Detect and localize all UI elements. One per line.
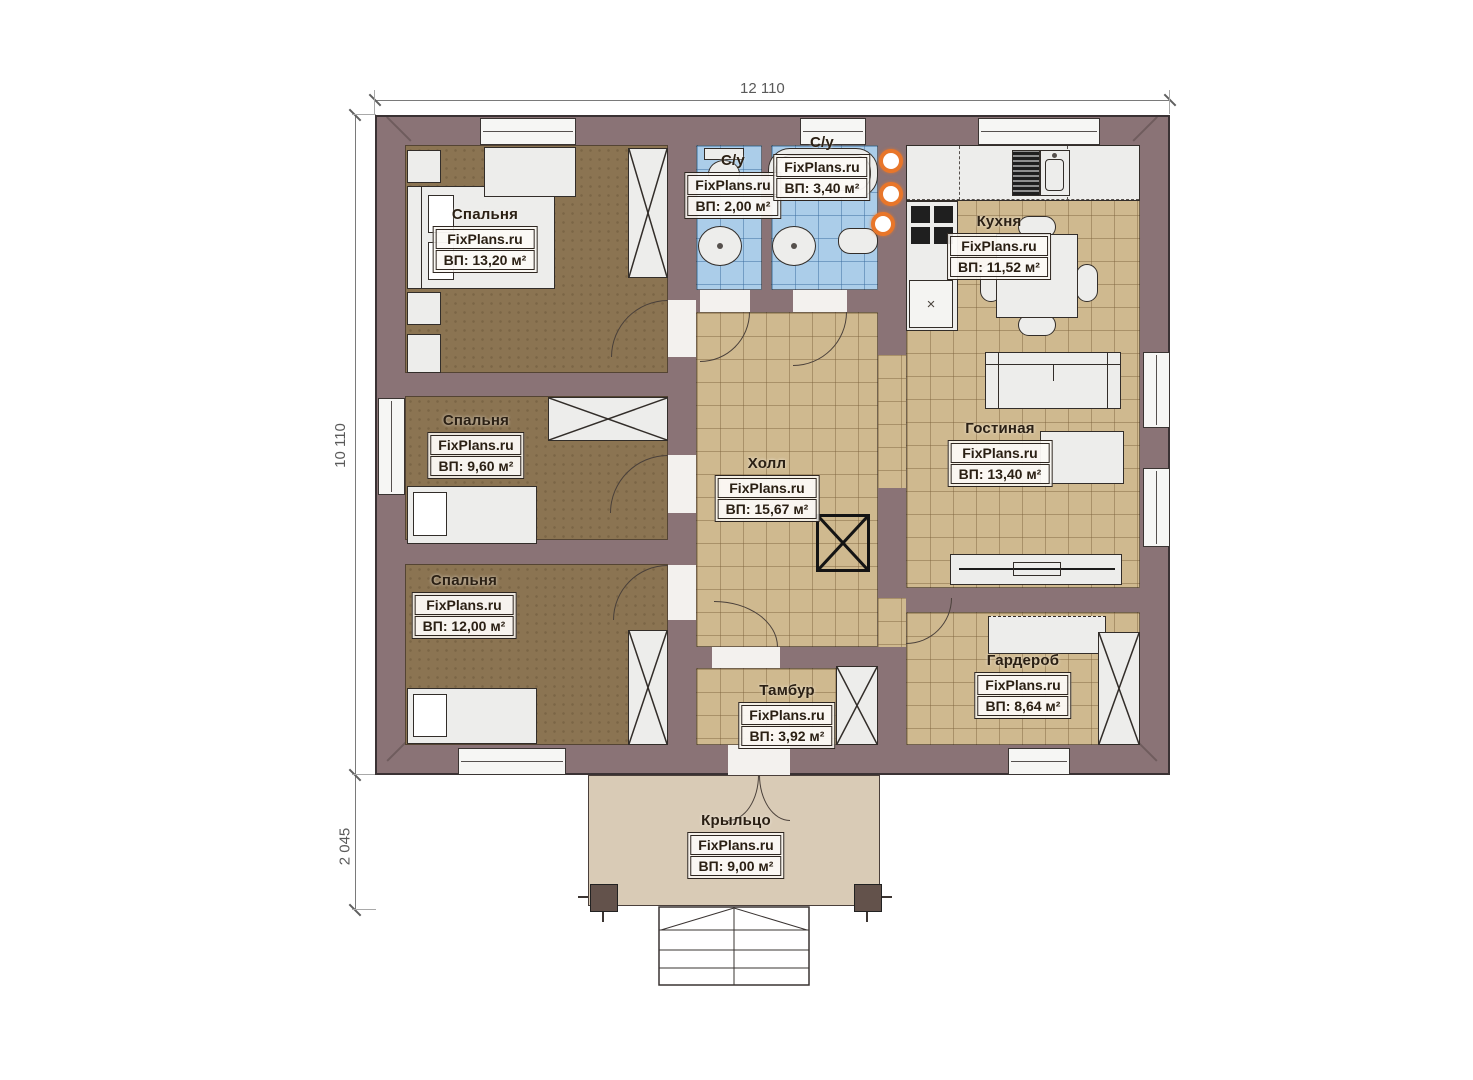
window-bedroom2 — [378, 398, 405, 495]
watermark: FixPlans.ru — [687, 175, 778, 195]
room-name: Спальня — [443, 412, 509, 429]
room-area: ВП: 2,00 м² — [687, 196, 778, 216]
room-info-box: FixPlans.ru ВП: 8,64 м² — [974, 672, 1071, 719]
window-living-1 — [1143, 352, 1170, 428]
washbasin — [838, 228, 878, 254]
room-area: ВП: 8,64 м² — [977, 696, 1068, 716]
room-label-living: Гостиная FixPlans.ru ВП: 13,40 м² — [948, 420, 1053, 487]
bedroom1-door-opening — [668, 300, 696, 357]
room-area: ВП: 9,60 м² — [430, 456, 521, 476]
sofa — [985, 352, 1121, 409]
room-label-bathroom1: С/у FixPlans.ru ВП: 2,00 м² — [684, 152, 781, 219]
sofa-armrest — [986, 353, 999, 408]
room-name: Спальня — [452, 206, 518, 223]
bathroom2-door-opening — [793, 290, 847, 312]
tv-stand — [950, 554, 1122, 585]
wardrobe-symbol — [548, 397, 668, 441]
room-info-box: FixPlans.ru ВП: 3,92 м² — [738, 702, 835, 749]
room-label-hall: Холл FixPlans.ru ВП: 15,67 м² — [715, 455, 820, 522]
room-info-box: FixPlans.ru ВП: 3,40 м² — [773, 154, 870, 201]
extension-line — [374, 90, 375, 114]
room-area: ВП: 3,92 м² — [741, 726, 832, 746]
room-area: ВП: 11,52 м² — [950, 257, 1048, 277]
vestibule-door-opening — [712, 647, 780, 668]
room-info-box: FixPlans.ru ВП: 9,60 м² — [427, 432, 524, 479]
room-area: ВП: 13,20 м² — [436, 250, 535, 270]
burner — [911, 206, 930, 223]
room-name: Гардероб — [987, 652, 1060, 669]
drain — [717, 243, 723, 249]
watermark: FixPlans.ru — [950, 236, 1048, 256]
front-door-opening — [728, 745, 790, 775]
chair — [1076, 264, 1098, 302]
dish-drainer — [1012, 150, 1040, 196]
room-label-wardrobe: Гардероб FixPlans.ru ВП: 8,64 м² — [974, 652, 1071, 719]
watermark: FixPlans.ru — [977, 675, 1068, 695]
dresser — [407, 334, 441, 373]
porch-steps — [658, 906, 810, 986]
watermark: FixPlans.ru — [718, 478, 817, 498]
desk — [1040, 431, 1124, 484]
toilet — [772, 226, 816, 266]
bedroom2-door-opening — [668, 455, 696, 513]
boiler-equipment-icon — [879, 182, 903, 206]
nightstand — [407, 292, 441, 325]
room-name: С/у — [810, 134, 834, 151]
bathroom1-door-opening — [700, 290, 750, 312]
ventilation-shaft-symbol — [816, 514, 870, 572]
extension-line — [352, 774, 376, 775]
room-label-bedroom3: Спальня FixPlans.ru ВП: 12,00 м² — [412, 572, 517, 639]
room-name: Спальня — [431, 572, 497, 589]
wardrobe-symbol — [628, 148, 668, 278]
room-info-box: FixPlans.ru ВП: 12,00 м² — [412, 592, 517, 639]
room-label-bedroom1: Спальня FixPlans.ru ВП: 13,20 м² — [433, 206, 538, 273]
window-bedroom1 — [480, 118, 576, 145]
room-label-kitchen: Кухня FixPlans.ru ВП: 11,52 м² — [947, 213, 1051, 280]
sofa-armrest — [1107, 353, 1120, 408]
sink-basin — [1045, 159, 1064, 191]
extension-line — [352, 114, 376, 115]
nightstand — [407, 150, 441, 183]
extension-line — [1169, 90, 1170, 114]
burner — [911, 227, 930, 244]
room-info-box: FixPlans.ru ВП: 9,00 м² — [687, 832, 784, 879]
room-area: ВП: 13,40 м² — [951, 464, 1050, 484]
wardrobe-symbol — [836, 666, 878, 745]
shelf-unit — [988, 616, 1106, 654]
dimension-line-left-main — [355, 115, 356, 775]
room-label-bathroom2: С/у FixPlans.ru ВП: 3,40 м² — [773, 134, 870, 201]
drain — [791, 243, 797, 249]
room-name: Крыльцо — [701, 812, 771, 829]
room-name: Холл — [748, 455, 786, 472]
room-name: С/у — [721, 152, 745, 169]
room-label-bedroom2: Спальня FixPlans.ru ВП: 9,60 м² — [427, 412, 524, 479]
watermark: FixPlans.ru — [415, 595, 514, 615]
wardrobe-symbol — [628, 630, 668, 745]
faucet — [1052, 153, 1057, 158]
boiler-equipment-icon — [879, 149, 903, 173]
window-bedroom3 — [458, 748, 566, 775]
porch-column — [590, 884, 618, 912]
room-area: ВП: 12,00 м² — [415, 616, 514, 636]
kitchen-sink — [1040, 150, 1070, 196]
watermark: FixPlans.ru — [436, 229, 535, 249]
room-info-box: FixPlans.ru ВП: 11,52 м² — [947, 233, 1051, 280]
dimension-height-main: 10 110 — [332, 423, 349, 468]
watermark: FixPlans.ru — [776, 157, 867, 177]
single-bed — [407, 486, 537, 544]
room-info-box: FixPlans.ru ВП: 15,67 м² — [715, 475, 820, 522]
washbasin — [698, 226, 742, 266]
appliance-x-symbol: × — [909, 280, 953, 328]
room-info-box: FixPlans.ru ВП: 2,00 м² — [684, 172, 781, 219]
dresser-under-window — [484, 147, 576, 197]
room-area: ВП: 3,40 м² — [776, 178, 867, 198]
watermark: FixPlans.ru — [741, 705, 832, 725]
room-area: ВП: 9,00 м² — [690, 856, 781, 876]
upper-cabinet-line — [907, 199, 1139, 200]
floor-plan: 12 110 10 110 2 045 — [0, 0, 1473, 1080]
dimension-width-total: 12 110 — [740, 80, 785, 97]
room-label-porch: Крыльцо FixPlans.ru ВП: 9,00 м² — [687, 812, 784, 879]
bedroom3-door-opening — [668, 565, 696, 620]
pillow — [413, 694, 447, 737]
sofa-cushion-divider — [1053, 365, 1054, 381]
window-kitchen — [978, 118, 1100, 145]
dimension-height-porch: 2 045 — [336, 828, 353, 866]
room-info-box: FixPlans.ru ВП: 13,40 м² — [948, 440, 1053, 487]
cabinet-divider — [959, 146, 960, 200]
extension-line — [352, 909, 376, 910]
watermark: FixPlans.ru — [690, 835, 781, 855]
wardrobe-door-passage — [878, 598, 906, 647]
porch-column — [854, 884, 882, 912]
window-living-2 — [1143, 468, 1170, 547]
room-label-vestibule: Тамбур FixPlans.ru ВП: 3,92 м² — [738, 682, 835, 749]
bed-headboard — [408, 187, 422, 288]
dimension-line-left-porch — [355, 775, 356, 910]
tv-base — [1013, 562, 1061, 576]
watermark: FixPlans.ru — [951, 443, 1050, 463]
sofa-back — [986, 353, 1120, 365]
dimension-line-top — [375, 100, 1170, 101]
window-wardrobe — [1008, 748, 1070, 775]
room-name: Кухня — [977, 213, 1022, 230]
boiler-equipment-icon — [871, 212, 895, 236]
hall-living-passage — [878, 355, 906, 488]
watermark: FixPlans.ru — [430, 435, 521, 455]
room-info-box: FixPlans.ru ВП: 13,20 м² — [433, 226, 538, 273]
pillow — [413, 492, 447, 536]
wardrobe-symbol — [1098, 632, 1140, 745]
room-name: Гостиная — [965, 420, 1034, 437]
room-name: Тамбур — [759, 682, 815, 699]
room-area: ВП: 15,67 м² — [718, 499, 817, 519]
single-bed — [407, 688, 537, 744]
